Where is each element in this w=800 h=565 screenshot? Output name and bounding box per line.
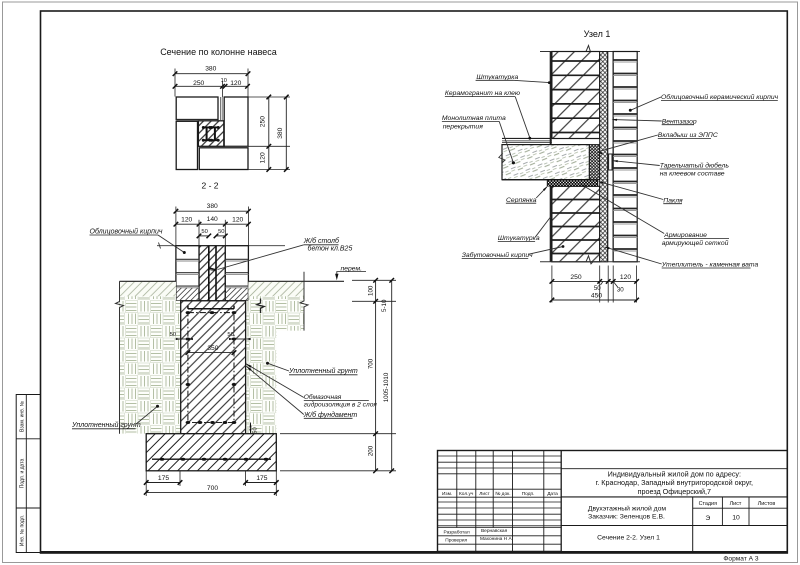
svg-text:Листов: Листов: [758, 501, 776, 507]
svg-text:50: 50: [227, 332, 233, 338]
svg-text:на клеевом составе: на клеевом составе: [660, 170, 725, 177]
svg-text:350: 350: [207, 345, 218, 352]
svg-text:200: 200: [367, 445, 374, 456]
svg-text:Уплотненный грунт: Уплотненный грунт: [71, 421, 141, 429]
svg-text:Изм.: Изм.: [442, 491, 452, 497]
svg-text:700: 700: [207, 485, 218, 492]
svg-text:армирующей сеткой: армирующей сеткой: [662, 239, 729, 247]
svg-text:380: 380: [205, 66, 216, 73]
svg-text:Облицовочный керамический кирп: Облицовочный керамический кирпич: [661, 93, 779, 101]
svg-text:Двухэтажный жилой дом: Двухэтажный жилой дом: [588, 504, 666, 512]
svg-text:Сечение 2-2. Узел 1: Сечение 2-2. Узел 1: [597, 535, 660, 542]
svg-text:250: 250: [570, 274, 581, 281]
svg-text:Взам. инв. №: Взам. инв. №: [19, 401, 25, 432]
svg-text:700: 700: [367, 358, 374, 369]
svg-text:120: 120: [230, 80, 241, 87]
svg-text:Монолитная плита: Монолитная плита: [442, 115, 506, 122]
svg-text:№ док.: № док.: [495, 491, 510, 497]
svg-text:Штукатурка: Штукатурка: [476, 74, 518, 81]
svg-text:120: 120: [620, 274, 631, 281]
svg-text:Забутовочный кирпич: Забутовочный кирпич: [462, 251, 533, 259]
svg-text:перекрытия: перекрытия: [443, 124, 484, 131]
svg-text:Тарельчатый дюбель: Тарельчатый дюбель: [660, 162, 730, 170]
svg-text:Проверил: Проверил: [445, 538, 467, 544]
svg-text:Утеплитель - каменная вата: Утеплитель - каменная вата: [661, 262, 759, 269]
svg-text:120: 120: [181, 217, 192, 224]
svg-text:Вкладыш из ЭППС: Вкладыш из ЭППС: [658, 131, 718, 139]
svg-text:гидроизоляция в 2 слоя: гидроизоляция в 2 слоя: [304, 401, 377, 409]
svg-text:175: 175: [256, 475, 267, 482]
svg-text:Подп. и дата: Подп. и дата: [19, 459, 25, 489]
svg-text:10: 10: [221, 78, 227, 84]
svg-text:Кол.уч: Кол.уч: [459, 491, 474, 497]
svg-text:Ж/б фундамент: Ж/б фундамент: [303, 411, 358, 419]
svg-text:Дата: Дата: [547, 491, 558, 497]
svg-text:Уплотненный грунт: Уплотненный грунт: [288, 367, 358, 375]
svg-text:380: 380: [277, 127, 284, 138]
svg-text:Штукатурка: Штукатурка: [498, 235, 540, 242]
svg-text:100: 100: [367, 285, 374, 296]
svg-text:Керамогранит на клею: Керамогранит на клею: [445, 90, 520, 97]
svg-text:10: 10: [732, 515, 740, 522]
svg-text:50: 50: [201, 229, 207, 235]
svg-text:1005-1010: 1005-1010: [383, 372, 390, 402]
svg-text:120: 120: [260, 152, 267, 163]
svg-text:Армирование: Армирование: [663, 232, 707, 239]
svg-text:Пакля: Пакля: [663, 197, 683, 204]
svg-text:120: 120: [232, 217, 243, 224]
svg-text:Вентзазор: Вентзазор: [662, 118, 697, 125]
svg-text:450: 450: [591, 293, 602, 300]
svg-text:Обмазочная: Обмазочная: [304, 393, 342, 401]
svg-text:Ж/б столб: Ж/б столб: [303, 237, 340, 245]
svg-text:50: 50: [253, 427, 259, 433]
svg-text:проезд Офицерский,7: проезд Офицерский,7: [638, 487, 711, 496]
svg-text:380: 380: [207, 203, 218, 210]
svg-text:2 - 2: 2 - 2: [201, 181, 218, 191]
svg-text:Стадия: Стадия: [699, 501, 717, 507]
svg-text:бетон кл.В25: бетон кл.В25: [308, 245, 353, 253]
svg-text:Облицовочный кирпич: Облицовочный кирпич: [90, 227, 163, 235]
svg-text:Махонина Н А: Махонина Н А: [480, 536, 513, 542]
svg-text:Сечение по колонне навеса: Сечение по колонне навеса: [160, 47, 277, 57]
svg-text:50: 50: [218, 229, 224, 235]
svg-text:Э: Э: [705, 515, 710, 522]
svg-text:Лист: Лист: [730, 501, 742, 507]
svg-text:Инв. № подл.: Инв. № подл.: [19, 515, 25, 546]
svg-text:50: 50: [170, 332, 176, 338]
svg-text:Формат А 3: Формат А 3: [723, 556, 758, 563]
svg-text:Заказчик: Зеленцов Е.В.: Заказчик: Зеленцов Е.В.: [588, 514, 665, 521]
svg-text:Вернавская: Вернавская: [481, 528, 508, 534]
svg-text:Лист: Лист: [479, 491, 490, 497]
svg-text:250: 250: [260, 116, 267, 127]
svg-text:Разработал: Разработал: [444, 529, 470, 535]
svg-text:250: 250: [193, 80, 204, 87]
svg-text:Подп.: Подп.: [522, 491, 535, 497]
svg-text:Серпянка: Серпянка: [506, 197, 537, 204]
svg-text:50: 50: [594, 285, 601, 292]
svg-text:5-10: 5-10: [381, 299, 388, 312]
svg-text:140: 140: [207, 216, 218, 223]
svg-text:30: 30: [617, 287, 624, 294]
svg-text:175: 175: [158, 475, 169, 482]
svg-text:Узел 1: Узел 1: [584, 29, 611, 39]
